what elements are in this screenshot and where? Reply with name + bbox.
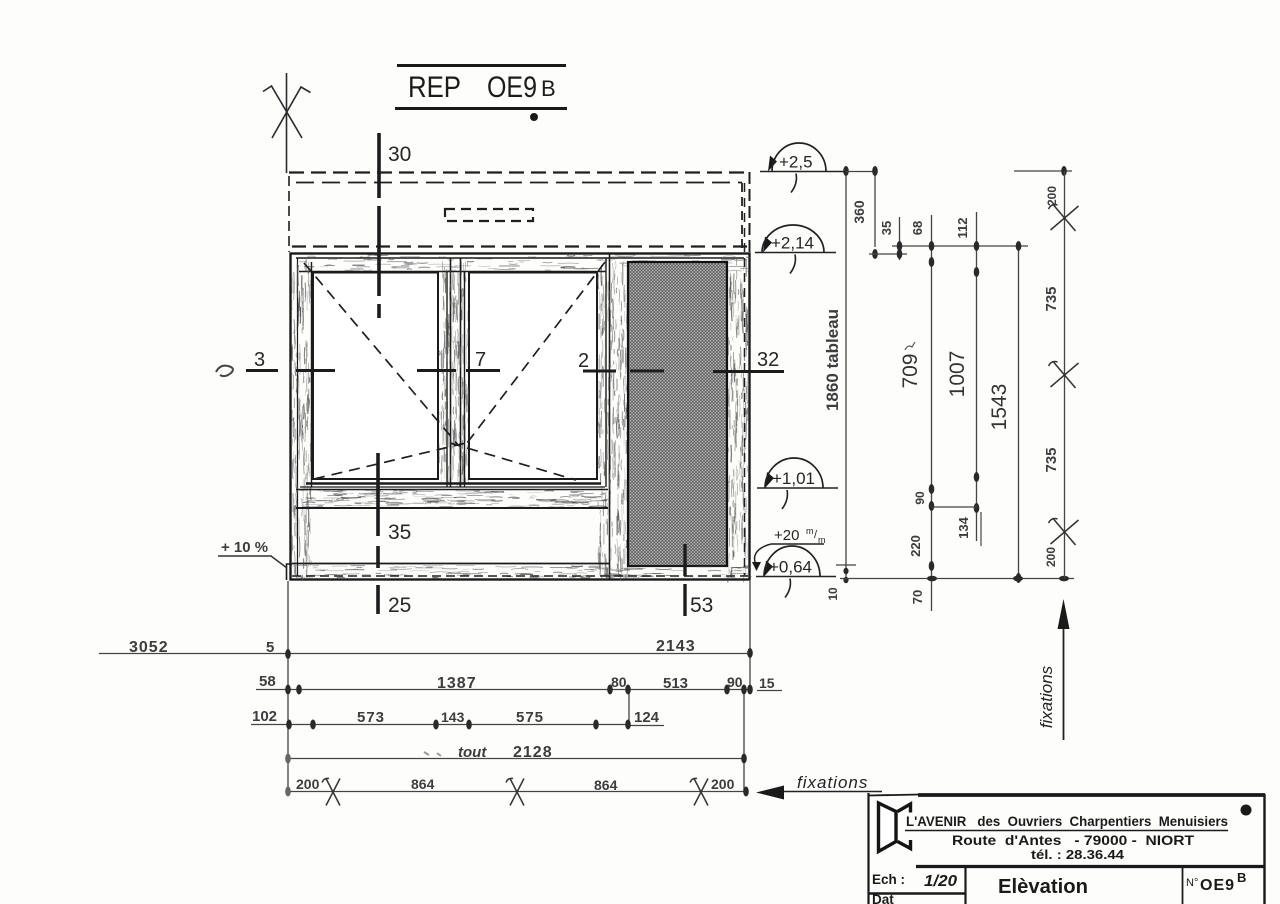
svg-text:200: 200 (1045, 186, 1059, 206)
svg-text:200: 200 (1044, 547, 1058, 567)
svg-text:Ech :: Ech : (872, 872, 905, 887)
svg-text:90: 90 (727, 674, 743, 690)
svg-text:25: 25 (388, 594, 411, 617)
svg-text:102: 102 (252, 708, 277, 725)
svg-text:OE9: OE9 (1200, 877, 1235, 894)
svg-text:+ 10 %: + 10 % (221, 539, 268, 556)
svg-text:80: 80 (611, 674, 627, 690)
svg-text:58: 58 (259, 673, 276, 690)
svg-text:35: 35 (879, 221, 894, 235)
svg-text:1/20: 1/20 (924, 873, 957, 890)
svg-text:112: 112 (955, 218, 970, 239)
svg-text:735: 735 (1043, 286, 1060, 311)
svg-text:513: 513 (663, 675, 688, 692)
svg-text:10: 10 (826, 587, 840, 601)
svg-text:m: m (806, 526, 814, 536)
svg-text:L'AVENIR des Ouvriers Char: L'AVENIR des Ouvriers Charpentiers Menui… (906, 814, 1228, 829)
svg-text:200: 200 (296, 776, 320, 792)
svg-text:573: 573 (357, 709, 385, 726)
svg-text:709: 709 (899, 353, 922, 388)
svg-text:Elèvation: Elèvation (998, 876, 1088, 898)
svg-text:Dat: Dat (872, 892, 894, 904)
svg-text:1860 tableau: 1860 tableau (823, 309, 842, 411)
svg-text:Route d'Antes ‑ 79000 ‑ NI: Route d'Antes ‑ 79000 ‑ NIORT (952, 833, 1195, 848)
svg-text:B: B (1237, 870, 1246, 885)
svg-text:30: 30 (388, 143, 411, 166)
svg-text:2: 2 (578, 350, 589, 372)
svg-text:575: 575 (516, 709, 544, 726)
svg-text:tout: tout (458, 744, 487, 761)
svg-text:3: 3 (254, 349, 265, 371)
svg-text:2143: 2143 (656, 638, 696, 655)
svg-text:OE9: OE9 (487, 71, 537, 104)
svg-text:1007: 1007 (946, 351, 969, 398)
svg-text:2128: 2128 (513, 744, 553, 761)
svg-text:+20: +20 (774, 527, 799, 544)
svg-text:220: 220 (908, 535, 923, 557)
svg-text:143: 143 (441, 709, 465, 725)
svg-text:864: 864 (594, 777, 618, 793)
svg-text:+0,64: +0,64 (769, 558, 812, 577)
svg-text:1387: 1387 (437, 675, 477, 692)
svg-text:tél. : 28.36.44: tél. : 28.36.44 (1031, 847, 1125, 862)
svg-text:+2,14: +2,14 (771, 234, 814, 253)
svg-text:68: 68 (910, 221, 925, 235)
svg-text:32: 32 (757, 349, 779, 371)
svg-text:fixations: fixations (797, 773, 868, 792)
svg-text:134: 134 (956, 516, 971, 538)
svg-text:5: 5 (266, 639, 274, 656)
svg-text:REP: REP (408, 71, 461, 104)
svg-text:1543: 1543 (988, 384, 1011, 431)
svg-text:360: 360 (851, 200, 867, 224)
svg-text:7: 7 (475, 349, 486, 371)
svg-text:fixations: fixations (1037, 665, 1056, 728)
svg-text:35: 35 (388, 521, 411, 544)
svg-text:864: 864 (411, 776, 435, 792)
svg-text:124: 124 (634, 709, 660, 726)
svg-text:15: 15 (759, 675, 775, 691)
svg-text:200: 200 (711, 776, 735, 792)
svg-text:+2,5: +2,5 (779, 153, 813, 172)
svg-text:+1,01: +1,01 (772, 469, 815, 488)
svg-text:735: 735 (1043, 447, 1060, 472)
svg-text:N°: N° (1186, 877, 1198, 889)
svg-text:53: 53 (690, 594, 713, 617)
svg-text:90: 90 (913, 491, 927, 505)
svg-text:3052: 3052 (129, 639, 169, 656)
svg-text:B: B (541, 76, 556, 101)
svg-text:70: 70 (910, 590, 925, 604)
